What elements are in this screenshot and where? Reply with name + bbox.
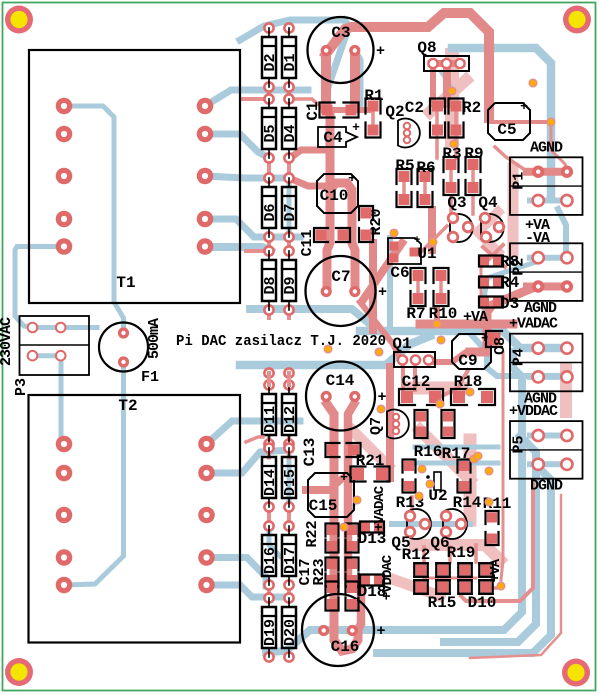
svg-text:Q1: Q1 (392, 335, 411, 353)
svg-text:+: + (348, 171, 356, 186)
svg-text:+: + (376, 43, 385, 60)
svg-text:-VA: -VA (525, 230, 550, 247)
svg-text:R6: R6 (416, 159, 435, 177)
svg-text:R23: R23 (311, 558, 328, 585)
svg-text:R19: R19 (447, 544, 476, 562)
svg-text:R2: R2 (462, 99, 481, 117)
svg-text:+: + (376, 623, 385, 640)
svg-text:T1: T1 (116, 274, 135, 292)
svg-text:U2: U2 (428, 487, 447, 505)
svg-text:R10: R10 (429, 305, 458, 323)
svg-text:R14: R14 (453, 494, 482, 512)
svg-text:+: + (340, 470, 348, 485)
svg-text:Q4: Q4 (478, 194, 498, 212)
svg-text:D5: D5 (262, 124, 279, 142)
svg-text:C9: C9 (458, 352, 477, 370)
svg-text:D15: D15 (282, 469, 299, 496)
svg-text:R1: R1 (364, 87, 383, 105)
svg-text:C3: C3 (331, 24, 350, 42)
svg-text:P1: P1 (511, 172, 528, 190)
svg-text:D20: D20 (282, 619, 299, 646)
svg-text:Q7: Q7 (368, 417, 385, 435)
svg-text:C12: C12 (402, 373, 431, 391)
svg-text:+VADAC: +VADAC (509, 316, 558, 333)
svg-text:R21: R21 (356, 452, 385, 470)
svg-text:+: + (352, 120, 360, 135)
svg-text:Q2: Q2 (385, 103, 404, 121)
svg-text:D8: D8 (262, 276, 279, 294)
svg-text:D14: D14 (262, 469, 279, 496)
svg-text:R9: R9 (464, 145, 483, 163)
svg-text:U1: U1 (417, 245, 436, 263)
svg-text:+: + (414, 235, 421, 247)
svg-text:R16: R16 (414, 443, 443, 461)
svg-text:C10: C10 (320, 187, 349, 205)
svg-text:D7: D7 (282, 203, 299, 221)
svg-text:500mA: 500mA (146, 318, 163, 359)
svg-text:DGND: DGND (530, 478, 563, 495)
svg-text:C8: C8 (492, 337, 509, 355)
svg-text:F1: F1 (141, 369, 159, 386)
svg-text:P4: P4 (511, 348, 528, 366)
svg-text:C13: C13 (301, 438, 319, 467)
svg-text:R5: R5 (395, 157, 414, 175)
svg-text:C16: C16 (331, 638, 360, 656)
svg-text:+: + (378, 284, 387, 301)
svg-text:R7: R7 (406, 305, 425, 323)
svg-text:D9: D9 (282, 276, 299, 294)
svg-text:T2: T2 (118, 397, 137, 415)
svg-text:+VDDAC: +VDDAC (380, 554, 396, 600)
svg-text:AGND: AGND (530, 139, 563, 156)
svg-text:C7: C7 (331, 268, 350, 286)
svg-text:+VA: +VA (488, 558, 504, 582)
svg-text:C15: C15 (309, 497, 338, 515)
svg-text:D4: D4 (282, 124, 299, 142)
svg-text:C4: C4 (323, 129, 343, 147)
svg-text:D10: D10 (468, 594, 497, 612)
svg-text:230VAC: 230VAC (0, 317, 15, 366)
svg-text:C14: C14 (326, 372, 355, 390)
svg-text:Q8: Q8 (417, 39, 436, 57)
svg-text:C1: C1 (304, 101, 322, 120)
svg-text:D12: D12 (282, 406, 299, 433)
svg-text:D19: D19 (262, 619, 279, 646)
svg-text:P3: P3 (13, 378, 30, 396)
svg-text:R15: R15 (428, 594, 457, 612)
svg-text:R22: R22 (304, 520, 321, 547)
svg-text:P2: P2 (511, 258, 528, 276)
svg-text:Q3: Q3 (447, 194, 466, 212)
svg-text:P5: P5 (511, 435, 528, 453)
svg-text:D16: D16 (262, 547, 279, 574)
svg-text:+: + (520, 99, 528, 114)
svg-text:AGND: AGND (524, 300, 557, 317)
svg-text:C2: C2 (405, 99, 424, 117)
svg-text:+: + (377, 389, 386, 406)
svg-text:D6: D6 (262, 203, 279, 221)
svg-text:+VADAC: +VADAC (372, 485, 388, 531)
svg-text:+VA: +VA (463, 309, 488, 326)
svg-text:D2: D2 (262, 53, 279, 71)
svg-text:+VDDAC: +VDDAC (509, 403, 558, 420)
svg-text:C6: C6 (390, 264, 409, 282)
svg-text:C5: C5 (497, 121, 516, 139)
svg-text:D13: D13 (358, 530, 387, 548)
svg-text:D11: D11 (262, 406, 279, 433)
svg-text:R12: R12 (402, 546, 431, 564)
svg-text:D1: D1 (282, 53, 299, 71)
svg-text:Pi DAC zasilacz T.J. 2020: Pi DAC zasilacz T.J. 2020 (176, 333, 386, 350)
